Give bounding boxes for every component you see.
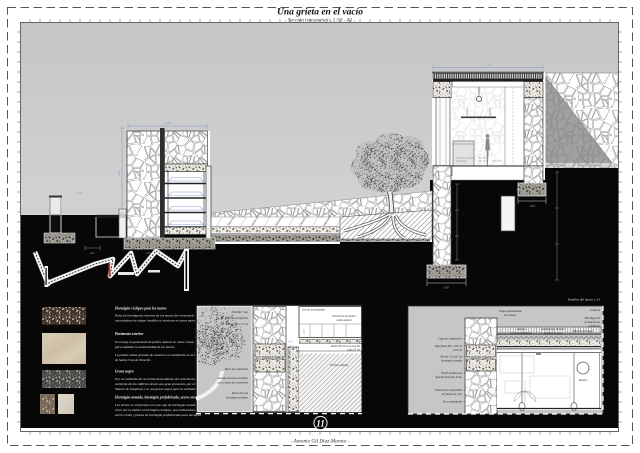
svg-text:10 Ø 16: 10 Ø 16 — [453, 348, 463, 352]
svg-text:Bajante: Bajante — [579, 379, 588, 382]
svg-text:La piedra caliza procede de ca: La piedra caliza procede de canteras en … — [114, 353, 199, 357]
svg-text:Cubierta: Cubierta — [590, 308, 601, 312]
svg-text:hormigón ciclópeo: hormigón ciclópeo — [226, 396, 248, 400]
svg-text:Detalles del hueco 1:15: Detalles del hueco 1:15 — [567, 298, 601, 302]
svg-text:7.36: 7.36 — [485, 63, 491, 67]
svg-text:Esbeltía 7 mm: Esbeltía 7 mm — [230, 310, 248, 314]
svg-text:con el muro de contención: con el muro de contención — [217, 381, 248, 385]
svg-text:Barrera de vapor: Barrera de vapor — [573, 329, 594, 333]
svg-text:cada 15 cm: cada 15 cm — [478, 160, 488, 162]
svg-text:Montura de fijación: Montura de fijación — [224, 316, 249, 320]
svg-text:cada 20 cm: cada 20 cm — [347, 349, 360, 352]
svg-text:pendiente: pendiente — [588, 324, 601, 328]
svg-text:Una grieta en el vacío: Una grieta en el vacío — [277, 8, 363, 18]
svg-text:1.26: 1.26 — [263, 338, 268, 341]
svg-text:11: 11 — [316, 418, 325, 428]
svg-text:Guía móvil: Guía móvil — [492, 160, 502, 162]
svg-text:Capa de compresión: Capa de compresión — [438, 337, 462, 341]
svg-text:Foco empotrado: Foco empotrado — [442, 400, 463, 404]
svg-text:Grava negra: Grava negra — [115, 370, 134, 374]
svg-text:+0.16: +0.16 — [258, 207, 266, 211]
svg-text:de Santa Cruz de Tenerife.: de Santa Cruz de Tenerife. — [115, 358, 151, 362]
svg-text:Anclaje del muro ciclópeo: Anclaje del muro ciclópeo — [217, 376, 249, 380]
svg-text:Hormigón armado, hormigón pref: Hormigón armado, hormigón prefabricado, … — [114, 396, 199, 400]
svg-text:0.40: 0.40 — [288, 341, 293, 344]
svg-text:Terreno natural: Terreno natural — [330, 363, 348, 367]
svg-text:Los nichos se conforman con un: Los nichos se conforman con una caja de … — [114, 403, 201, 407]
svg-text:impermeabilizante: impermeabilizante — [510, 331, 532, 335]
svg-text:Tablero 45 x 15 cm: Tablero 45 x 15 cm — [226, 322, 248, 326]
svg-text:de lana de roca: de lana de roca — [544, 331, 563, 335]
svg-text:Muro visto de: Muro visto de — [231, 391, 249, 395]
svg-text:- Antonio Gil Díaz-Maroto -: - Antonio Gil Díaz-Maroto - — [291, 439, 350, 445]
svg-text:+5.10: +5.10 — [548, 87, 556, 91]
svg-text:acero cortén y placas de hormi: acero cortén y placas de hormigón prefab… — [115, 413, 202, 417]
svg-text:Sala de mecanógrafos: Sala de mecanógrafos — [302, 309, 325, 312]
svg-text:caliza pulida: caliza pulida — [456, 160, 467, 162]
svg-text:Pavimento de piedra: Pavimento de piedra — [331, 315, 356, 318]
svg-text:+4.50: +4.50 — [75, 191, 83, 195]
svg-text:5.06: 5.06 — [165, 121, 171, 125]
svg-text:Pavimento de piedra: Pavimento de piedra — [455, 157, 473, 160]
svg-text:+0.32: +0.32 — [322, 203, 330, 207]
svg-text:para enfatizar la materialidad: para enfatizar la materialidad de los mu… — [114, 345, 175, 349]
svg-text:Para los hormigones masivos de: Para los hormigones masivos de los muros… — [114, 314, 198, 318]
svg-text:libaron de máquinas y se usa g: libaron de máquinas y se usa grava negra… — [115, 387, 197, 391]
svg-text:+0.62: +0.62 — [516, 188, 524, 192]
svg-text:1.60: 1.60 — [443, 286, 449, 290]
svg-text:caliza natural: caliza natural — [336, 319, 352, 322]
svg-text:0.70: 0.70 — [303, 329, 306, 334]
svg-text:fijación del falso techo: fijación del falso techo — [436, 375, 463, 379]
svg-text:de placas de yeso: de placas de yeso — [442, 392, 463, 396]
svg-text:2.86: 2.86 — [117, 171, 121, 177]
svg-text:usan piedras de origen basálti: usan piedras de origen basáltico y morte… — [115, 319, 202, 323]
svg-text:Hormigón ciclópeo para los mur: Hormigón ciclópeo para los muros — [114, 307, 167, 311]
svg-text:hormigón armado: hormigón armado — [441, 359, 463, 363]
svg-text:1.00: 1.00 — [529, 204, 535, 208]
svg-text:de remate: de remate — [504, 313, 516, 317]
svg-text:Se escoge un pavimento de pied: Se escoge un pavimento de piedra natural… — [115, 340, 194, 344]
svg-text:Sala JKV: Sala JKV — [478, 158, 487, 160]
svg-text:Pavimento exterior: Pavimento exterior — [115, 332, 144, 336]
svg-text:Muro de contención: Muro de contención — [224, 367, 249, 371]
svg-text:1.05: 1.05 — [90, 252, 95, 255]
